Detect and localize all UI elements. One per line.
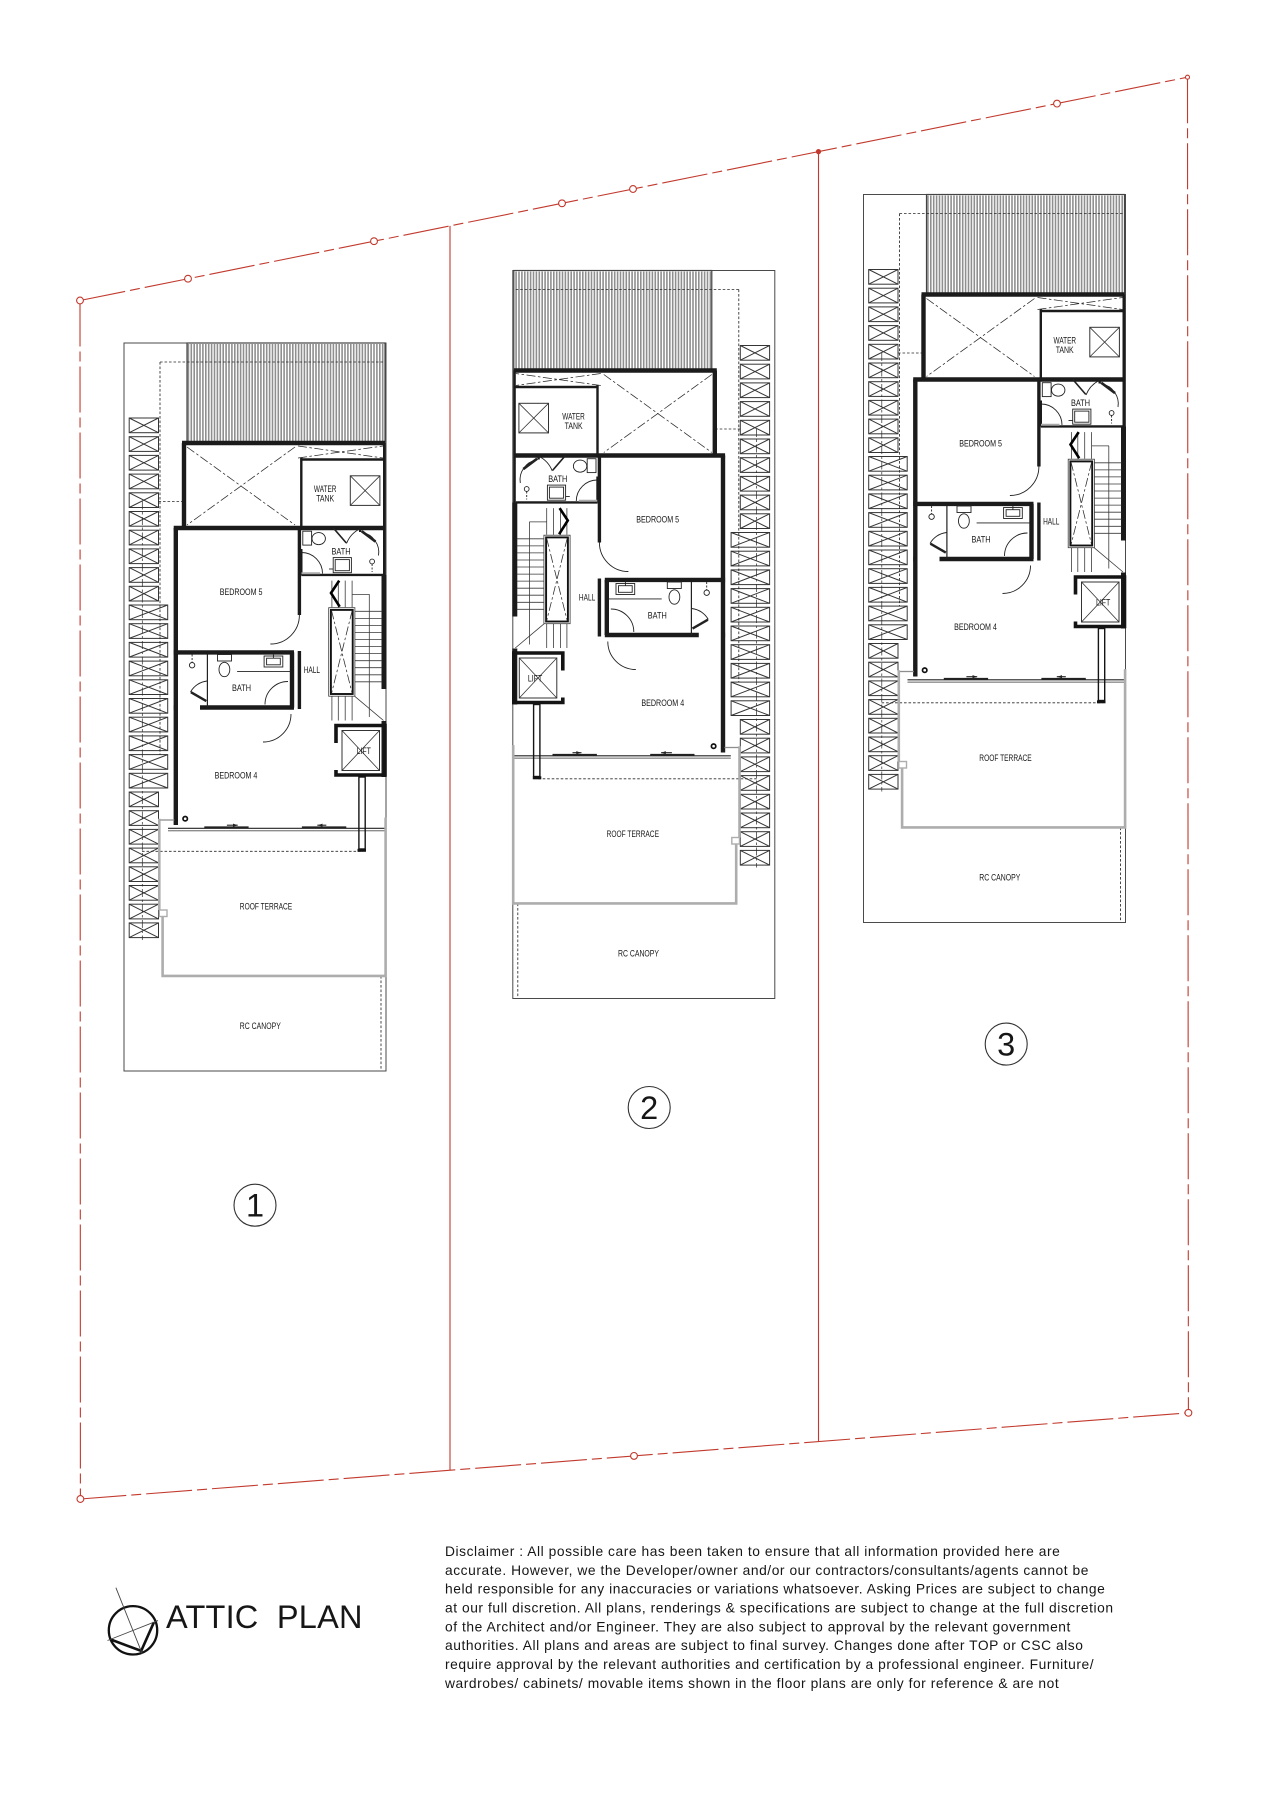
svg-text:authorities. All plans and are: authorities. All plans and areas are sub… xyxy=(445,1638,1083,1653)
svg-text:BEDROOM 4: BEDROOM 4 xyxy=(215,770,258,780)
svg-text:TANK: TANK xyxy=(565,421,583,431)
svg-text:WATER: WATER xyxy=(314,484,337,494)
svg-text:held responsible for any inacc: held responsible for any inaccuracies or… xyxy=(445,1582,1105,1597)
svg-text:TANK: TANK xyxy=(316,493,334,503)
svg-text:BATH: BATH xyxy=(332,547,351,557)
svg-text:LIFT: LIFT xyxy=(1096,598,1111,608)
svg-text:ROOF TERRACE: ROOF TERRACE xyxy=(607,829,659,839)
svg-text:BATH: BATH xyxy=(648,611,667,621)
svg-text:RC CANOPY: RC CANOPY xyxy=(618,948,659,958)
svg-text:BEDROOM 4: BEDROOM 4 xyxy=(954,622,997,632)
svg-text:RC CANOPY: RC CANOPY xyxy=(979,872,1020,882)
svg-text:WATER: WATER xyxy=(1054,335,1077,345)
svg-text:2: 2 xyxy=(640,1090,658,1126)
svg-text:BATH: BATH xyxy=(972,535,991,545)
svg-text:LIFT: LIFT xyxy=(357,746,372,756)
svg-text:BEDROOM 4: BEDROOM 4 xyxy=(641,698,684,708)
svg-text:ROOF TERRACE: ROOF TERRACE xyxy=(240,902,292,912)
svg-text:1: 1 xyxy=(246,1188,264,1224)
svg-text:BEDROOM 5: BEDROOM 5 xyxy=(959,438,1002,448)
svg-text:BATH: BATH xyxy=(548,474,567,484)
svg-text:Disclaimer : All possible care: Disclaimer : All possible care has been … xyxy=(445,1544,1060,1559)
svg-text:BATH: BATH xyxy=(1071,398,1090,408)
svg-text:accurate. However, we the Deve: accurate. However, we the Developer/owne… xyxy=(445,1563,1089,1578)
svg-text:RC CANOPY: RC CANOPY xyxy=(240,1021,281,1031)
svg-text:BEDROOM 5: BEDROOM 5 xyxy=(636,514,679,524)
svg-text:at our full discretion. All pl: at our full discretion. All plans, rende… xyxy=(445,1601,1114,1616)
svg-text:require approval by the releva: require approval by the relevant authori… xyxy=(445,1657,1094,1672)
svg-text:BEDROOM 5: BEDROOM 5 xyxy=(220,587,263,597)
svg-text:of the Architect and/or Engine: of the Architect and/or Engineer. They a… xyxy=(445,1619,1071,1634)
svg-text:ATTIC PLAN: ATTIC PLAN xyxy=(166,1599,363,1635)
svg-text:LIFT: LIFT xyxy=(528,674,543,684)
svg-text:wardrobes/ cabinets/ movable i: wardrobes/ cabinets/ movable items shown… xyxy=(444,1676,1059,1691)
svg-text:ROOF TERRACE: ROOF TERRACE xyxy=(979,753,1031,763)
svg-text:BATH: BATH xyxy=(232,683,251,693)
svg-text:TANK: TANK xyxy=(1056,345,1074,355)
svg-text:HALL: HALL xyxy=(304,665,320,675)
svg-text:HALL: HALL xyxy=(1043,517,1059,527)
svg-text:WATER: WATER xyxy=(562,411,585,421)
svg-text:HALL: HALL xyxy=(579,593,595,603)
svg-text:3: 3 xyxy=(997,1027,1015,1063)
